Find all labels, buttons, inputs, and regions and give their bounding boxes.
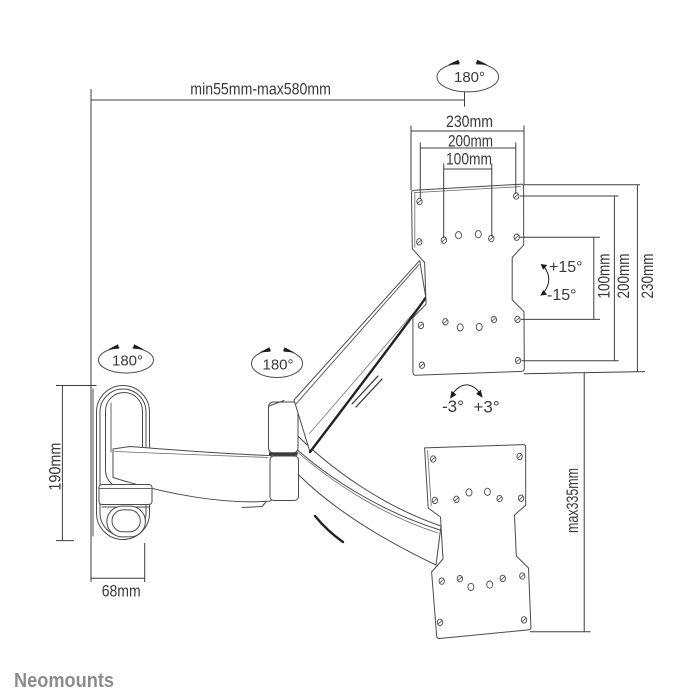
svg-text:100mm: 100mm: [595, 254, 614, 299]
svg-text:200mm: 200mm: [448, 132, 493, 151]
svg-text:200mm: 200mm: [614, 254, 633, 299]
svg-text:-15°: -15°: [547, 287, 577, 304]
svg-text:180°: 180°: [262, 357, 293, 374]
svg-text:Neomounts: Neomounts: [14, 670, 114, 692]
svg-text:180°: 180°: [112, 353, 143, 370]
svg-text:230mm: 230mm: [638, 254, 657, 299]
svg-text:180°: 180°: [454, 69, 485, 86]
svg-text:max335mm: max335mm: [563, 468, 582, 533]
svg-text:190mm: 190mm: [45, 443, 64, 491]
svg-text:100mm: 100mm: [446, 150, 492, 169]
svg-text:230mm: 230mm: [446, 112, 493, 131]
svg-text:-3°: -3°: [442, 397, 464, 416]
svg-text:68mm: 68mm: [102, 582, 141, 601]
svg-text:+15°: +15°: [549, 259, 583, 276]
svg-text:min55mm-max580mm: min55mm-max580mm: [190, 80, 331, 99]
svg-text:+3°: +3°: [474, 398, 500, 417]
